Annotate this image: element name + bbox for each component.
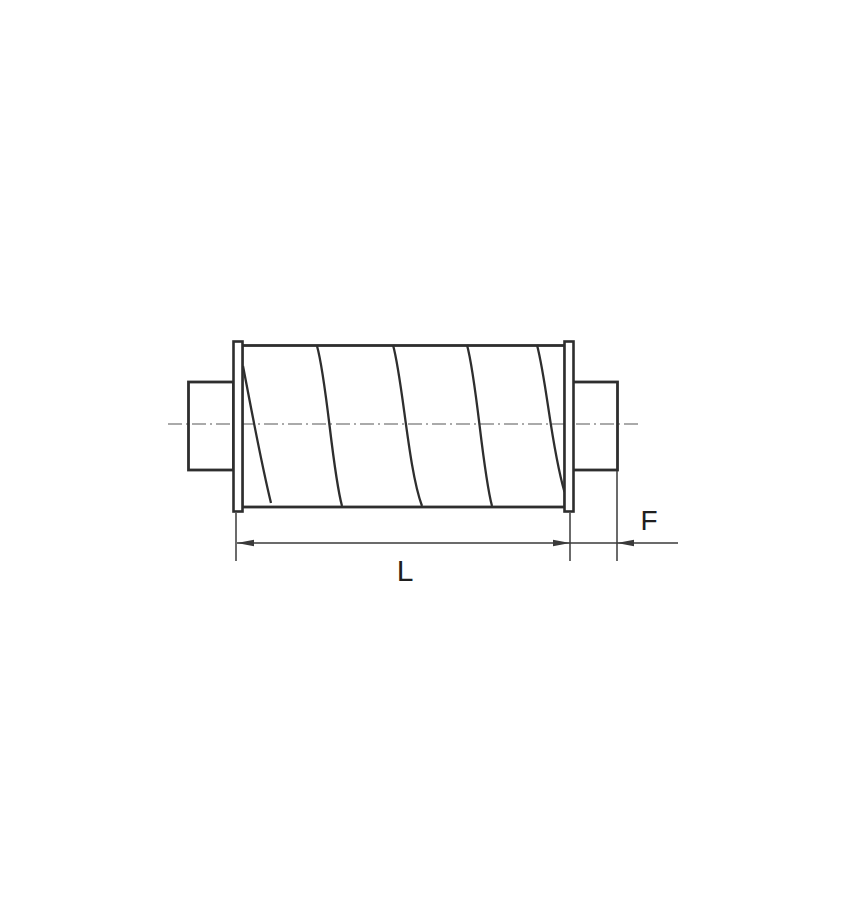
length-dimension-label: L bbox=[397, 554, 414, 587]
left-flange bbox=[234, 342, 243, 512]
drawing-page: L F bbox=[0, 0, 846, 900]
silencer-outlines bbox=[189, 342, 618, 512]
right-flange bbox=[565, 342, 574, 512]
left-duct-spigot bbox=[189, 382, 234, 470]
right-duct-spigot bbox=[573, 382, 618, 470]
silencer-body-outline bbox=[242, 346, 565, 508]
arrowhead-left-icon bbox=[237, 540, 254, 546]
arrowhead-right-icon bbox=[553, 540, 570, 546]
arrowhead-f-icon bbox=[617, 540, 634, 546]
spiral-seam-3 bbox=[393, 345, 422, 506]
spiral-seams bbox=[243, 345, 565, 506]
spiral-seam-4 bbox=[467, 345, 492, 506]
spiral-seam-2 bbox=[317, 346, 342, 506]
spiral-seam-5 bbox=[537, 345, 565, 492]
dimensions bbox=[236, 471, 678, 561]
technical-drawing-canvas: L F bbox=[0, 0, 846, 900]
spiral-seam-1 bbox=[243, 366, 271, 503]
end-offset-dimension-label: F bbox=[640, 505, 657, 536]
